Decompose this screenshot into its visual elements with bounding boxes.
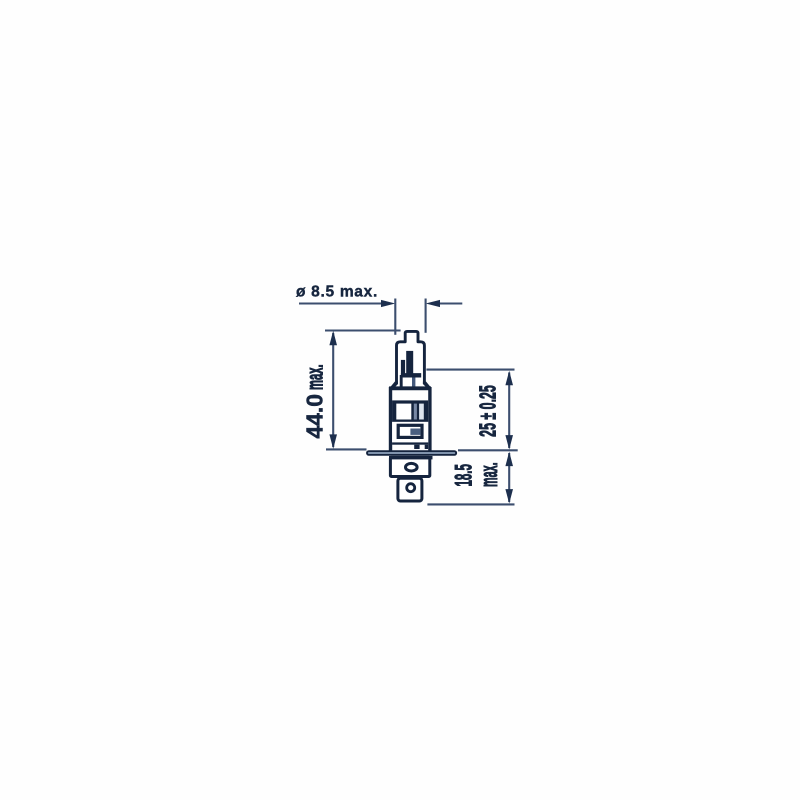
svg-text:max.: max.: [302, 364, 327, 390]
svg-text:25 ± 0.25: 25 ± 0.25: [474, 385, 500, 437]
svg-text:18.5: 18.5: [450, 464, 477, 486]
svg-text:max.: max.: [475, 462, 502, 487]
svg-text:ø 8.5 max.: ø 8.5 max.: [296, 284, 378, 301]
svg-text:44.0: 44.0: [302, 394, 328, 439]
